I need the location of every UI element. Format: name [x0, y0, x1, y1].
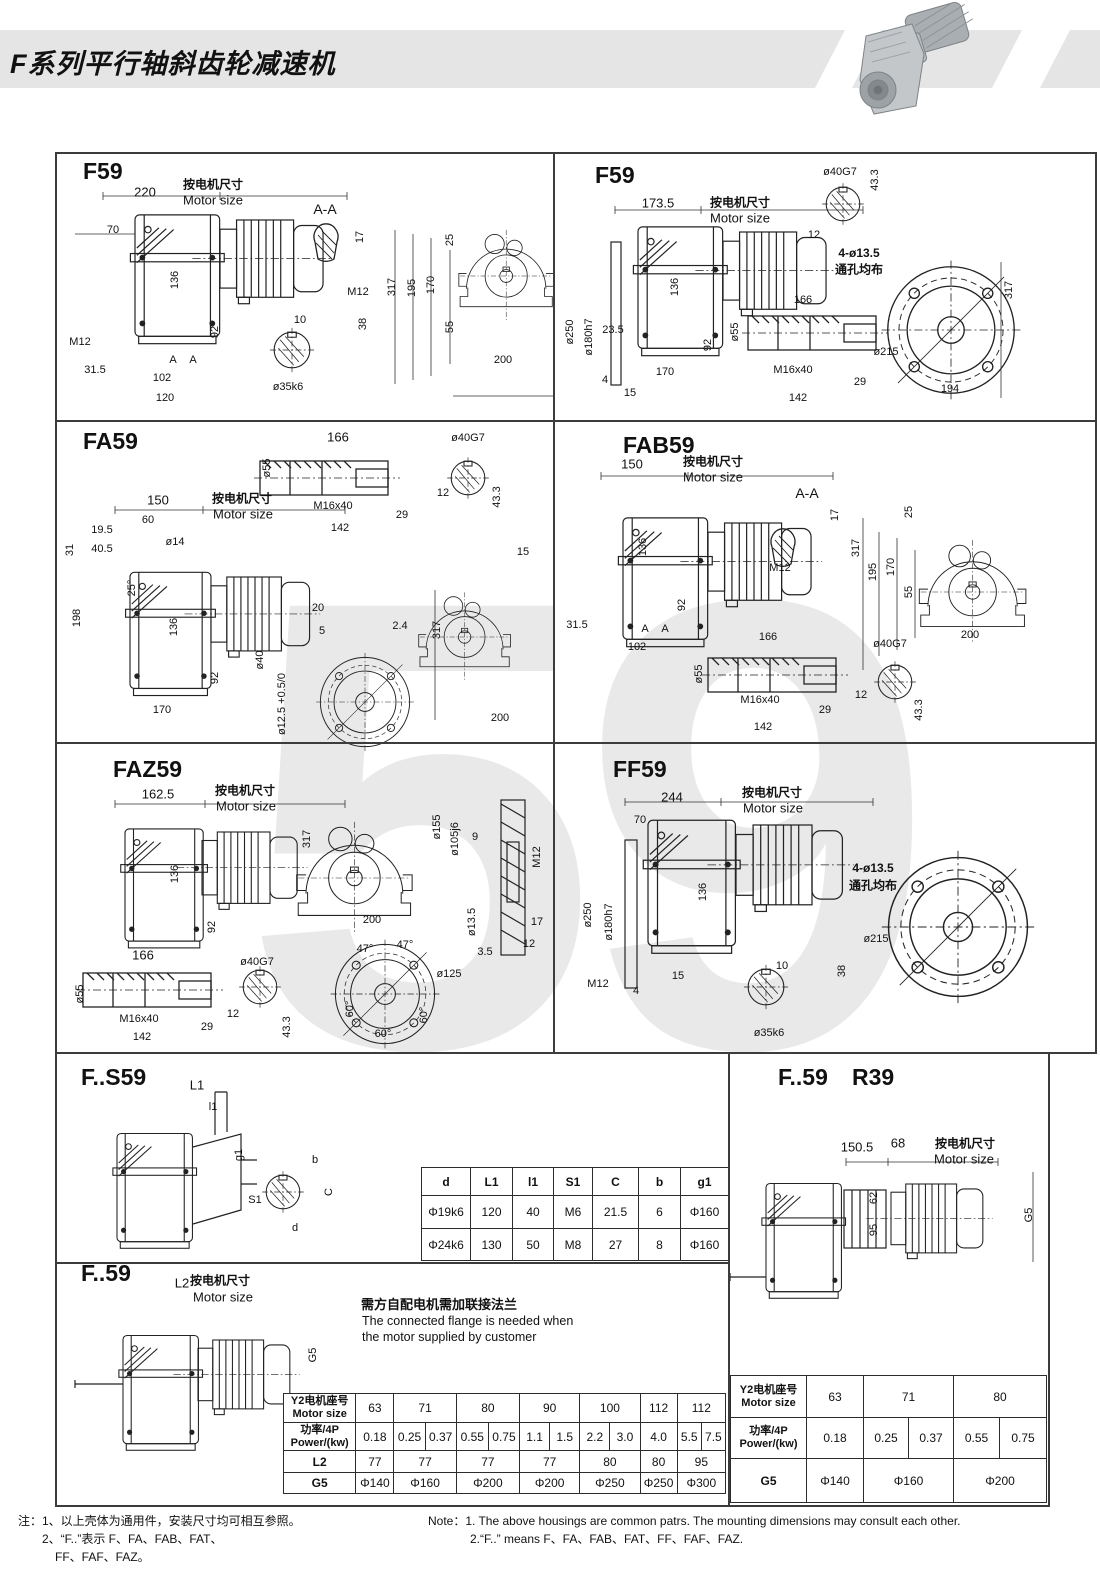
note-cn-3: FF、FAF、FAZ。: [55, 1548, 150, 1565]
dim-label: ø250: [582, 902, 594, 927]
row-header: L2: [284, 1451, 356, 1473]
dim-label: Motor size: [183, 193, 243, 208]
dim-label: M16x40: [740, 694, 779, 706]
dim-label: Motor size: [213, 507, 273, 522]
section-arrow-label: A: [641, 623, 648, 635]
cell: 0.37: [425, 1423, 456, 1451]
dim-label: 31.5: [84, 364, 105, 376]
section-arrow-label: A: [189, 354, 196, 366]
dim-label: 2.4: [392, 620, 407, 632]
dim-label: 317: [850, 539, 862, 557]
cell: 100: [580, 1394, 640, 1423]
panel-title: F59: [83, 158, 123, 185]
dim-label: 220: [134, 185, 156, 200]
row-header: Y2电机座号Motor size: [284, 1394, 356, 1423]
dim-label: Motor size: [934, 1152, 994, 1167]
panel-faz59: FAZ59 162.5 按电机尺寸 Motor size 136 92 317 …: [55, 742, 553, 1052]
dim-label: S1: [248, 1194, 261, 1206]
dim-label: 166: [132, 948, 154, 963]
dim-label: 142: [754, 721, 772, 733]
dim-label: 通孔均布: [835, 261, 883, 278]
dim-label: 3.5: [477, 946, 492, 958]
dim-label: ø12.5 +0.5/0: [276, 673, 288, 735]
dim-label: 4: [602, 374, 608, 386]
dim-label: 按电机尺寸: [935, 1135, 995, 1152]
dim-label: ø250: [564, 319, 576, 344]
dim-label: ø40G7: [451, 432, 485, 444]
panel-title: F59: [595, 162, 635, 189]
cell: 0.55: [954, 1418, 1000, 1459]
cell: Φ160: [681, 1196, 729, 1229]
dim-label: 29: [201, 1021, 213, 1033]
cell: 80: [954, 1376, 1047, 1418]
cell: 71: [394, 1394, 456, 1423]
cell: 50: [513, 1229, 554, 1261]
cell: 21.5: [593, 1196, 639, 1229]
cell: 0.37: [909, 1418, 954, 1459]
dim-label: 38: [357, 318, 369, 330]
cell: Φ200: [520, 1473, 580, 1494]
dim-label: 17: [829, 509, 841, 521]
cell: 80: [580, 1451, 640, 1473]
cell: 0.25: [864, 1418, 909, 1459]
cell: 77: [456, 1451, 519, 1473]
dim-label: 4-ø13.5: [838, 246, 879, 260]
dim-label: 92: [206, 921, 218, 933]
cell: Φ300: [677, 1473, 725, 1494]
dim-label: 12: [855, 689, 867, 701]
flange-note-en2: the motor supplied by customer: [362, 1330, 536, 1344]
dim-label: 62: [868, 1192, 880, 1204]
motor-table-left: Y2电机座号Motor size 63 71 80 90 100 112 112…: [283, 1393, 726, 1494]
dim-label: 166: [759, 631, 777, 643]
grid-line: [55, 152, 1097, 154]
cell: 1.1: [520, 1423, 550, 1451]
dim-label: 162.5: [142, 787, 175, 802]
dim-label: C: [323, 1188, 335, 1196]
dim-label: 按电机尺寸: [215, 782, 275, 799]
dim-label: 166: [327, 430, 349, 445]
dim-label: 15: [672, 970, 684, 982]
dim-label: 31: [64, 544, 76, 556]
cell: 0.75: [488, 1423, 519, 1451]
section-label: A-A: [313, 201, 336, 217]
panel-fab59: FAB59 150 按电机尺寸 Motor size A-A 17 M12 31…: [553, 420, 1095, 742]
dim-label: 60°: [344, 1001, 356, 1018]
dim-label: 40.5: [91, 543, 112, 555]
dim-label: G5: [307, 1348, 319, 1363]
dim-label: 29: [854, 376, 866, 388]
dim-label: 200: [491, 712, 509, 724]
dim-label: 200: [363, 914, 381, 926]
dim-label: ø40G7: [873, 638, 907, 650]
col-header: l1: [513, 1168, 554, 1196]
dim-label: ø55: [693, 665, 705, 684]
dim-label: 60°: [418, 1007, 430, 1024]
cell: 3.0: [610, 1423, 640, 1451]
dim-label: 19.5: [91, 524, 112, 536]
dim-label: 70: [107, 224, 119, 236]
dim-label: 317: [301, 830, 313, 848]
dim-label: Motor size: [216, 799, 276, 814]
dim-label: Motor size: [710, 211, 770, 226]
grid-line: [55, 1505, 1050, 1507]
cell: 80: [640, 1451, 677, 1473]
row-header: 功率/4PPower/(kw): [731, 1418, 807, 1459]
dim-label: Motor size: [193, 1290, 253, 1305]
grid-line: [55, 742, 1097, 744]
shaft-dims-table: d L1 l1 S1 C b g1 Φ19k6 120 40 M6 21.5 6…: [421, 1167, 729, 1261]
dim-label: ø35k6: [754, 1027, 785, 1039]
dim-label: 55: [903, 586, 915, 598]
flange-note-en1: The connected flange is needed when: [362, 1314, 573, 1328]
dim-label: 95: [868, 1224, 880, 1236]
dim-label: ø55: [729, 323, 741, 342]
dim-label: 150.5: [841, 1140, 874, 1155]
dim-label: 按电机尺寸: [190, 1272, 250, 1289]
dim-label: b: [312, 1154, 318, 1166]
cell: 4.0: [640, 1423, 677, 1451]
section-label: A-A: [795, 485, 818, 501]
dim-label: 136: [169, 271, 181, 289]
cell: 1.5: [550, 1423, 580, 1451]
grid-line: [728, 1052, 730, 1505]
cell: Φ200: [954, 1459, 1047, 1503]
cell: 0.18: [807, 1418, 864, 1459]
dim-label: 5: [319, 625, 325, 637]
dim-label: 29: [396, 509, 408, 521]
panel-title: FA59: [83, 428, 138, 455]
cell: Φ19k6: [422, 1196, 471, 1229]
cell: Φ250: [640, 1473, 677, 1494]
dim-label: 170: [656, 366, 674, 378]
cell: 40: [513, 1196, 554, 1229]
row-header: G5: [284, 1473, 356, 1494]
col-header: S1: [554, 1168, 593, 1196]
panel-f59-left: F59 按电机尺寸 Motor size 220 70 A-A 17 136 M…: [55, 152, 553, 420]
cell: 112: [677, 1394, 725, 1423]
panel-title: F..59: [81, 1260, 131, 1287]
dim-label: 142: [789, 392, 807, 404]
grid-line: [553, 152, 555, 1052]
dim-label: 68: [891, 1136, 905, 1151]
dim-label: 92: [676, 599, 688, 611]
dim-label: ø40G7: [240, 956, 274, 968]
cell: 77: [356, 1451, 394, 1473]
dim-label: M12: [769, 562, 790, 574]
cell: 7.5: [701, 1423, 725, 1451]
cell: 130: [471, 1229, 513, 1261]
dim-label: d: [292, 1222, 298, 1234]
row-header: Y2电机座号Motor size: [731, 1376, 807, 1418]
cell: 2.2: [580, 1423, 610, 1451]
dim-label: 按电机尺寸: [683, 453, 743, 470]
dim-label: 92: [209, 672, 221, 684]
dim-label: 31.5: [566, 619, 587, 631]
header-banner-slash-right: [1040, 30, 1100, 88]
dim-label: ø40: [254, 651, 266, 670]
cell: 0.55: [456, 1423, 488, 1451]
section-arrow-label: A: [169, 354, 176, 366]
dim-label: 17: [531, 916, 543, 928]
note-cn-1: 注：1、以上壳体为通用件，安装尺寸均可相互参照。: [18, 1512, 301, 1529]
cell: 27: [593, 1229, 639, 1261]
cell: 63: [807, 1376, 864, 1418]
dim-label: ø40G7: [823, 166, 857, 178]
col-header: C: [593, 1168, 639, 1196]
flange-note-cn: 需方自配电机需加联接法兰: [361, 1294, 517, 1313]
dim-label: G5: [1023, 1208, 1035, 1223]
grid-line: [1095, 152, 1097, 1054]
dim-label: 按电机尺寸: [212, 490, 272, 507]
cell: 80: [456, 1394, 519, 1423]
dim-label: g1: [233, 1149, 245, 1161]
dim-label: l1: [209, 1101, 218, 1113]
dim-label: M16x40: [773, 364, 812, 376]
dim-label: 10: [294, 314, 306, 326]
dim-label: 142: [133, 1031, 151, 1043]
panel-fa59: FA59 166 ø40G7 ø55 M16x40 12 43.3 29 142…: [55, 420, 553, 742]
cell: 77: [394, 1451, 456, 1473]
dim-label: 38: [836, 965, 848, 977]
panel-title-2: R39: [852, 1064, 894, 1091]
panel-ff59: FF59 244 按电机尺寸 Motor size 70 136 ø250 ø1…: [553, 742, 1095, 1052]
dim-label: 15: [624, 387, 636, 399]
dim-label: ø215: [873, 346, 898, 358]
dim-label: 136: [637, 538, 649, 556]
dim-label: 198: [71, 609, 83, 627]
dim-label: 150: [621, 457, 643, 472]
cell: 5.5: [677, 1423, 701, 1451]
dim-label: 17: [354, 231, 366, 243]
dim-label: ø155: [431, 814, 443, 839]
dim-label: 166: [794, 294, 812, 306]
col-header: L1: [471, 1168, 513, 1196]
dim-label: 25: [903, 506, 915, 518]
grid-line: [55, 420, 1097, 422]
dim-label: ø180h7: [603, 903, 615, 940]
motor-table-right: Y2电机座号Motor size 63 71 80 功率/4PPower/(kw…: [730, 1375, 1047, 1503]
dim-label: 43.3: [869, 169, 881, 190]
dim-label: M12: [347, 286, 368, 298]
cell: 112: [640, 1394, 677, 1423]
dim-label: 10: [776, 960, 788, 972]
panel-title: FAZ59: [113, 756, 182, 783]
dim-label: 55: [444, 321, 456, 333]
dim-label: L1: [190, 1078, 204, 1093]
dim-label: 142: [331, 522, 349, 534]
grid-line: [55, 1052, 1097, 1054]
dim-label: 12: [437, 487, 449, 499]
dim-label: 92: [702, 339, 714, 351]
note-en-1: Note：1. The above housings are common pa…: [428, 1512, 961, 1529]
cell: M8: [554, 1229, 593, 1261]
panel-title: FF59: [613, 756, 667, 783]
col-header: g1: [681, 1168, 729, 1196]
dim-label: 4: [633, 985, 639, 997]
dim-label: 317: [386, 278, 398, 296]
dim-label: M12: [587, 978, 608, 990]
dim-label: 120: [156, 392, 174, 404]
col-header: d: [422, 1168, 471, 1196]
dim-label: 9: [472, 831, 478, 843]
grid-line: [55, 1262, 730, 1264]
dim-label: 20: [312, 602, 324, 614]
dim-label: 4-ø13.5: [852, 861, 893, 875]
dim-label: 按电机尺寸: [710, 194, 770, 211]
dim-label: 按电机尺寸: [742, 784, 802, 801]
dim-label: 25: [444, 234, 456, 246]
dim-label: 170: [153, 704, 171, 716]
cell: 63: [356, 1394, 394, 1423]
cell: Φ250: [580, 1473, 640, 1494]
dim-label: 92: [209, 326, 221, 338]
panel-title: F..S59: [81, 1064, 146, 1091]
col-header: b: [639, 1168, 681, 1196]
dim-label: M12: [531, 846, 543, 867]
dim-label: 136: [669, 278, 681, 296]
dim-label: 195: [406, 279, 418, 297]
f59-left-drawing: [55, 152, 553, 420]
dim-label: ø215: [863, 933, 888, 945]
cell: Φ200: [456, 1473, 519, 1494]
dim-label: Motor size: [683, 470, 743, 485]
page-title: F系列平行轴斜齿轮减速机: [10, 42, 336, 81]
dim-label: M16x40: [313, 500, 352, 512]
row-header: G5: [731, 1459, 807, 1503]
cell: 0.18: [356, 1423, 394, 1451]
dim-label: L2: [175, 1276, 189, 1291]
dim-label: 195: [867, 563, 879, 581]
section-arrow-label: A: [661, 623, 668, 635]
dim-label: ø13.5: [466, 908, 478, 936]
dim-label: 15: [517, 546, 529, 558]
note-en-2: 2.“F..” means F、FA、FAB、FAT、FF、FAF、FAZ.: [470, 1530, 743, 1547]
cell: Φ160: [394, 1473, 456, 1494]
dim-label: 70: [634, 814, 646, 826]
grid-line: [55, 152, 57, 1507]
panel-f59-r39: F..59 R39 150.5 68 按电机尺寸 Motor size 62 9…: [728, 1052, 1048, 1505]
dim-label: 102: [153, 372, 171, 384]
cell: 90: [520, 1394, 580, 1423]
panel-title: F..59: [778, 1064, 828, 1091]
dim-label: ø180h7: [583, 318, 595, 355]
dim-label: 317: [431, 621, 443, 639]
dim-label: 317: [1003, 281, 1015, 299]
panel-bottom-left: F..S59 L1 l1 g1 S1 b C d F..59 L2 按电机尺寸 …: [55, 1052, 728, 1505]
cell: 0.75: [1000, 1418, 1047, 1459]
dim-label: ø35k6: [273, 381, 304, 393]
dim-label: 150: [147, 493, 169, 508]
cell: 6: [639, 1196, 681, 1229]
dim-label: 194: [941, 383, 959, 395]
dim-label: ø14: [166, 536, 185, 548]
grid-line: [1048, 1052, 1050, 1507]
dim-label: ø55: [74, 985, 86, 1004]
dim-label: 173.5: [642, 196, 675, 211]
dim-label: 47°: [397, 939, 414, 951]
dim-label: 136: [697, 883, 709, 901]
dim-label: 60°: [375, 1028, 392, 1040]
cell: 95: [677, 1451, 725, 1473]
cell: 120: [471, 1196, 513, 1229]
cell: Φ160: [681, 1229, 729, 1261]
dim-label: ø55: [261, 459, 273, 478]
panel-f59-right: F59 173.5 按电机尺寸 Motor size ø40G7 43.3 12…: [553, 152, 1095, 420]
dim-label: 12: [523, 938, 535, 950]
dim-label: 60: [142, 514, 154, 526]
product-photo: [846, 2, 991, 124]
faz59-drawing: [55, 742, 553, 1052]
dim-label: 170: [885, 558, 897, 576]
dim-label: 43.3: [491, 486, 503, 507]
dim-label: 136: [168, 618, 180, 636]
dim-label: 12: [227, 1008, 239, 1020]
cell: 0.25: [394, 1423, 425, 1451]
dim-label: 244: [661, 790, 683, 805]
dim-label: M16x40: [119, 1013, 158, 1025]
dim-label: 200: [494, 354, 512, 366]
dim-label: M12: [69, 336, 90, 348]
dim-label: 12: [808, 229, 820, 241]
dim-label: 170: [425, 276, 437, 294]
dim-label: 通孔均布: [849, 877, 897, 894]
cell: Φ140: [356, 1473, 394, 1494]
dim-label: 136: [169, 865, 181, 883]
dim-label: ø125: [436, 968, 461, 980]
cell: Φ160: [864, 1459, 954, 1503]
dim-label: 200: [961, 629, 979, 641]
dim-label: 25°: [126, 580, 138, 597]
dim-label: 102: [628, 641, 646, 653]
cell: M6: [554, 1196, 593, 1229]
cell: 8: [639, 1229, 681, 1261]
note-cn-2: 2、“F..”表示 F、FA、FAB、FAT、: [42, 1530, 222, 1547]
cell: 77: [520, 1451, 580, 1473]
ff59-drawing: [553, 742, 1095, 1052]
cell: Φ24k6: [422, 1229, 471, 1261]
row-header: 功率/4PPower/(kw): [284, 1423, 356, 1451]
catalog-page: { "header": {"title": "F系列平行轴斜齿轮减速机"}, "…: [0, 0, 1100, 1583]
dim-label: Motor size: [743, 801, 803, 816]
dim-label: 47°: [357, 943, 374, 955]
dim-label: 23.5: [602, 324, 623, 336]
dim-label: 43.3: [913, 699, 925, 720]
dim-label: ø105j6: [449, 822, 461, 856]
dim-label: 29: [819, 704, 831, 716]
dim-label: 43.3: [281, 1016, 293, 1037]
cell: 71: [864, 1376, 954, 1418]
dim-label: 按电机尺寸: [183, 176, 243, 193]
cell: Φ140: [807, 1459, 864, 1503]
